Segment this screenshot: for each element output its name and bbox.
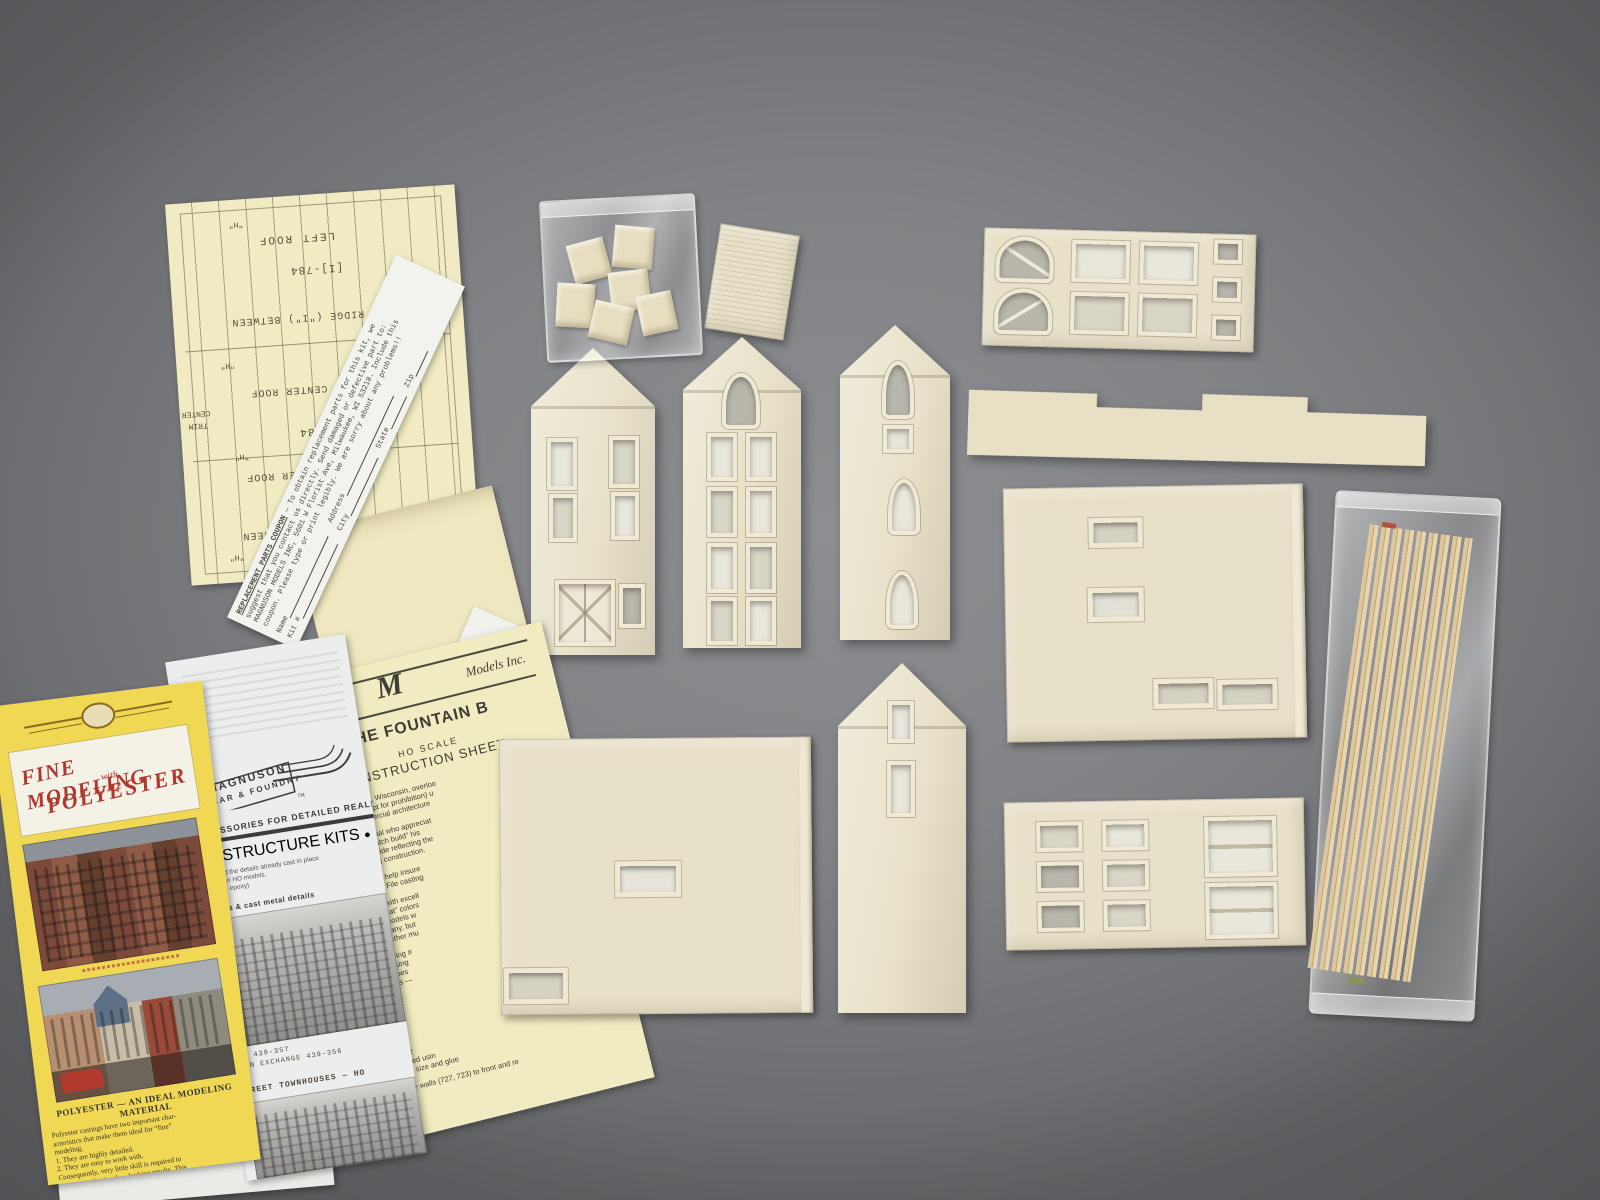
wood-strips [1307,524,1472,982]
freight-door [559,584,611,642]
color-photo-townhouses [22,817,216,971]
resin-casting-chunk [588,300,636,346]
window-slot [1222,684,1272,705]
wall-bottom-right [1004,797,1307,950]
double-window [1075,244,1126,279]
tower-facade-middle [683,337,801,648]
template-h-mark: "H" [234,451,249,461]
window [887,429,909,449]
window-slot [1093,592,1139,617]
double-window [1143,246,1194,281]
tower-facade-left [531,348,655,655]
window [553,498,573,538]
strip-tip-green [1348,977,1365,985]
color-photo-street [38,958,236,1103]
small-window [1217,282,1237,299]
window [711,547,733,589]
wall-top-right [982,227,1257,352]
window [750,601,772,641]
wall-panel-right [1003,483,1307,742]
window [615,496,635,536]
coupon-field-city: City [336,513,351,533]
small-window [1216,320,1236,337]
small-window [1041,865,1079,888]
photo-window-texture [254,1091,420,1178]
small-window [1106,824,1144,847]
window [711,437,733,477]
brand-monogram: M [373,667,407,706]
window [891,765,911,813]
small-parts-bag [539,193,703,363]
template-h-mark: "H" [228,219,243,229]
window [711,491,733,533]
window [551,442,573,486]
brick-cornice-strip [967,381,1427,469]
window [892,705,910,739]
window [613,440,635,484]
window [750,491,772,533]
window [623,588,641,624]
double-window [1074,296,1125,331]
bag-fold [1311,992,1474,1019]
photo-window-texture [33,844,208,963]
window-slot [509,973,563,999]
door-opening [999,240,1050,279]
brick-roof-slab [704,223,800,340]
bag-fold [541,195,694,218]
window-slot [1093,522,1137,543]
bw-photo-buildings [220,893,406,1048]
small-window [1218,244,1238,261]
window-slot [1158,683,1208,704]
small-window [1040,825,1078,848]
edge-trim [799,737,813,1013]
resin-casting-chunk [612,225,656,270]
small-window [1108,904,1146,927]
small-window [1107,864,1145,887]
resin-casting-chunk [566,236,613,284]
brand-rest: Models Inc. [464,650,527,680]
template-label-trim: TRIM [188,420,208,430]
window [750,437,772,477]
window [750,547,772,589]
template-h-mark: "H" [220,360,235,370]
resin-casting-chunk [635,290,679,337]
double-window [1142,298,1193,333]
wall-panel-bottom-left [499,737,813,1016]
door-opening [998,292,1049,331]
window [711,601,733,641]
bullet-mark: ● [363,828,371,841]
tower-facade-bottom [838,663,966,1013]
edge-trim [1291,483,1307,737]
photo-window-texture [230,917,399,1046]
bag-fold [1337,492,1500,515]
template-h-mark: "H" [229,552,244,562]
large-window [1209,886,1274,935]
window-slot [620,866,676,892]
small-window [1042,905,1080,928]
large-window [1208,820,1273,873]
stripwood-bag [1308,490,1501,1022]
tower-facade-right [840,325,950,640]
eave-line [531,406,655,409]
resin-casting-chunk [555,282,595,328]
kit-photo-stage: LEFT ROOF [I]-784 RIDGE ("I") BETWEEN "H… [0,0,1600,1200]
trademark: TM [297,792,305,799]
